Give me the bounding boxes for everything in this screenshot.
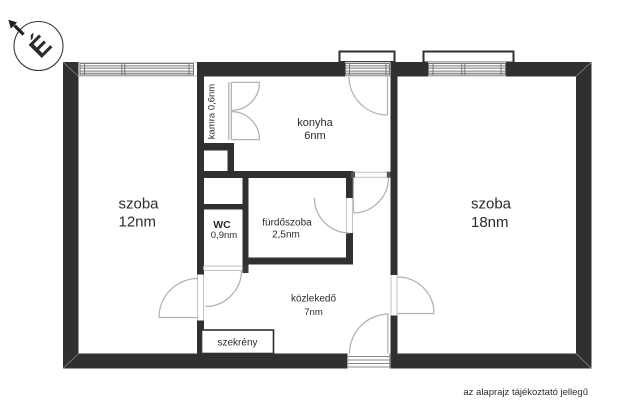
svg-text:kamra 0,6nm: kamra 0,6nm [207,84,218,140]
svg-text:az alaprajz tájékoztató jelleg: az alaprajz tájékoztató jellegű [463,387,588,398]
svg-text:2,5nm: 2,5nm [272,230,300,241]
svg-text:közlekedő: közlekedő [291,294,336,305]
svg-text:0,9nm: 0,9nm [211,230,237,241]
svg-text:6nm: 6nm [304,130,325,142]
svg-text:fürdőszoba: fürdőszoba [262,218,312,229]
svg-text:12nm: 12nm [119,214,157,231]
svg-text:7nm: 7nm [304,307,323,318]
svg-text:szoba: szoba [119,196,160,213]
svg-text:konyha: konyha [297,117,333,129]
svg-text:szoba: szoba [471,196,512,213]
svg-text:18nm: 18nm [471,214,509,231]
svg-text:szekrény: szekrény [217,338,257,349]
